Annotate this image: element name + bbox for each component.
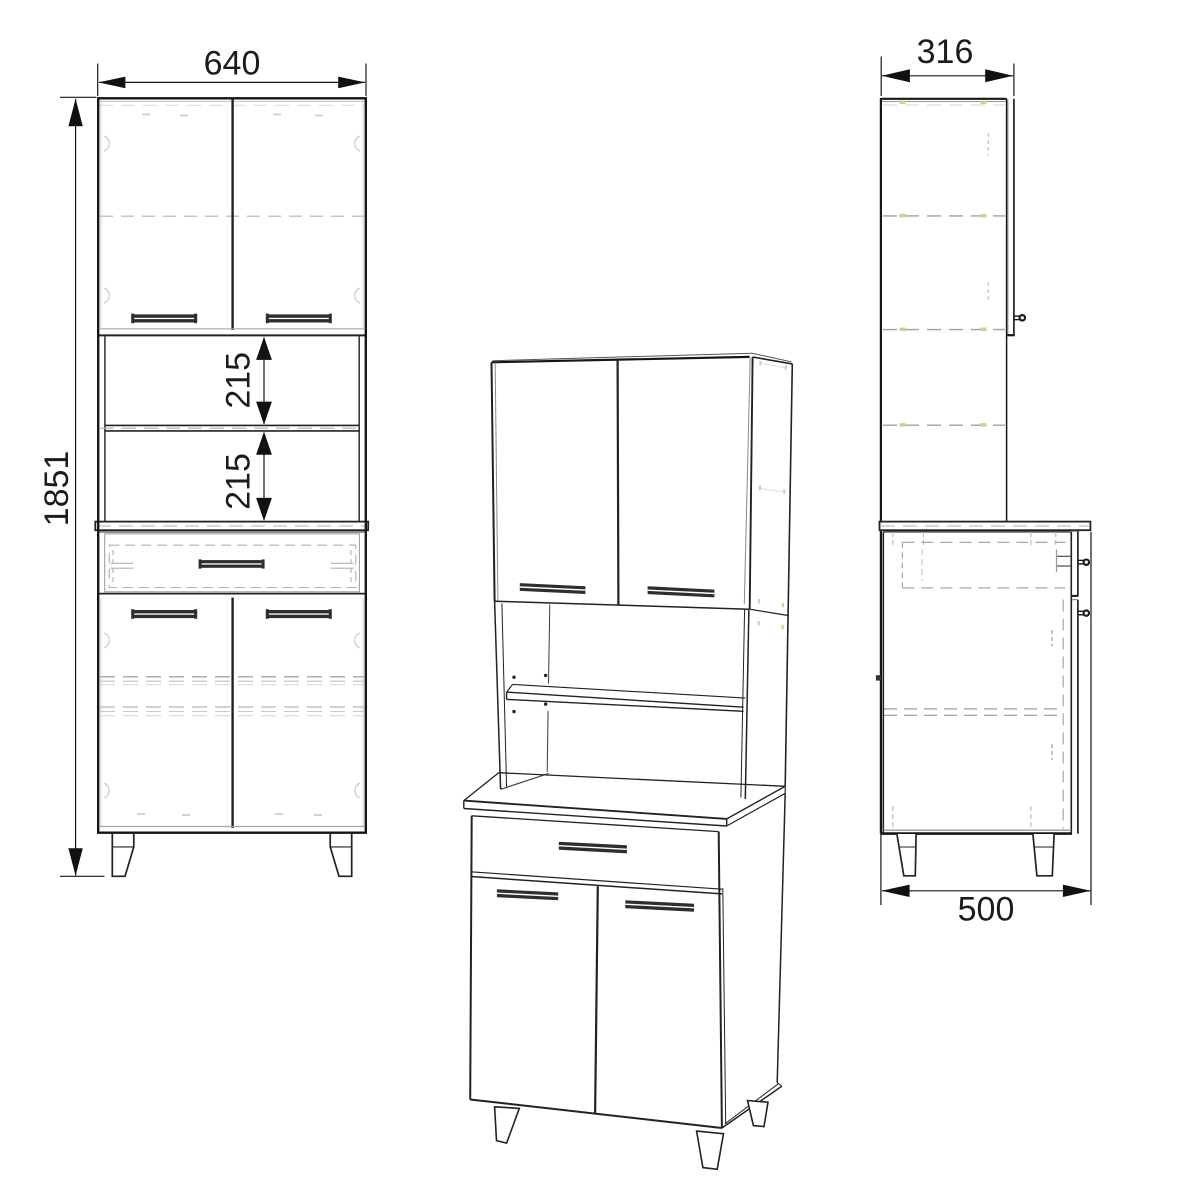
svg-text:500: 500 (958, 891, 1015, 929)
svg-text:215: 215 (220, 453, 258, 510)
svg-text:640: 640 (204, 45, 261, 83)
svg-text:1851: 1851 (38, 451, 76, 527)
svg-text:316: 316 (917, 33, 974, 71)
svg-text:215: 215 (220, 352, 258, 409)
